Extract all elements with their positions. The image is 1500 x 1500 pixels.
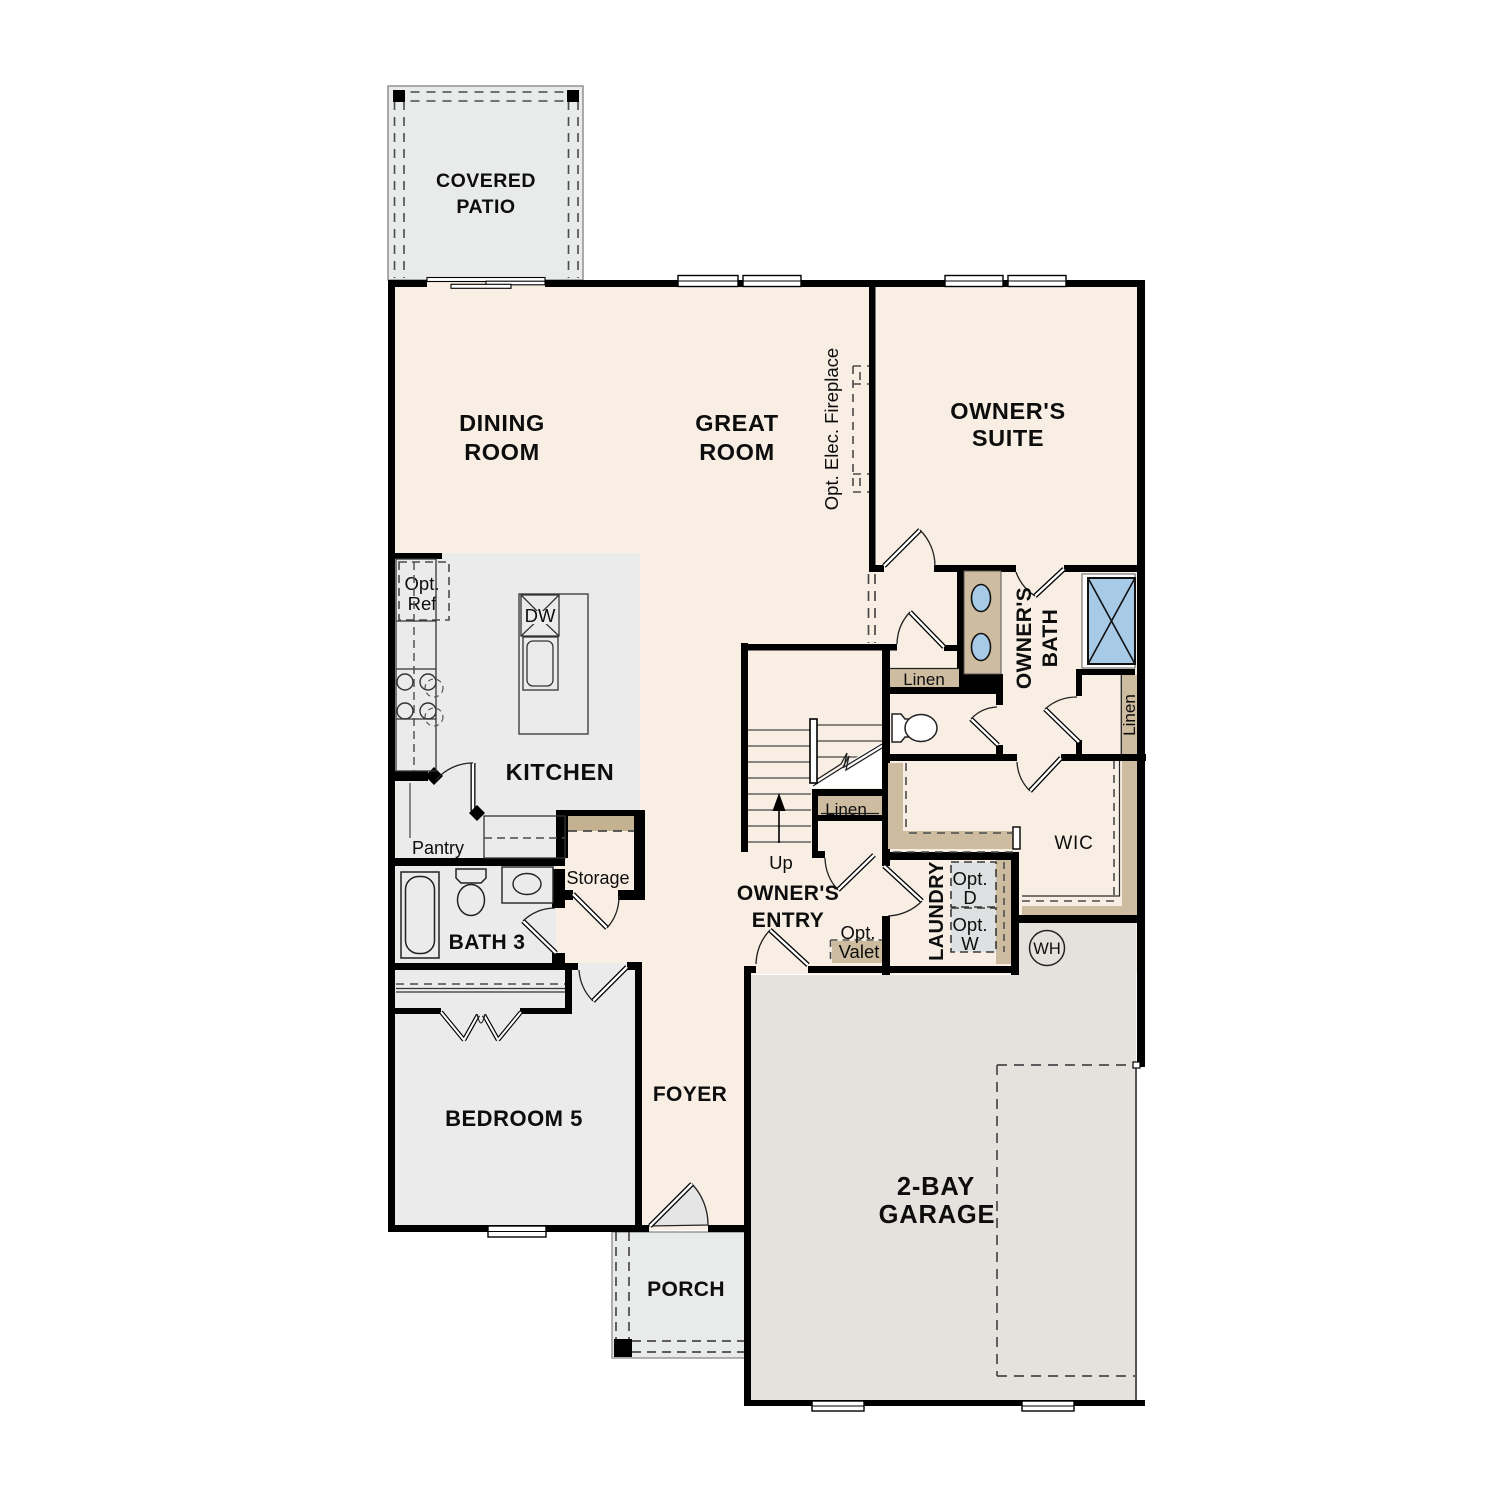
svg-text:OWNER'S: OWNER'S — [737, 882, 839, 905]
svg-text:OWNER'S: OWNER'S — [950, 398, 1066, 424]
svg-text:BATH 3: BATH 3 — [449, 931, 526, 954]
svg-text:Opt.: Opt. — [953, 868, 988, 889]
svg-text:PATIO: PATIO — [456, 196, 515, 218]
svg-text:LAUNDRY: LAUNDRY — [926, 861, 948, 961]
svg-text:Pantry: Pantry — [412, 838, 464, 858]
svg-text:Opt.: Opt. — [953, 914, 988, 935]
svg-text:KITCHEN: KITCHEN — [506, 759, 615, 785]
svg-text:SUITE: SUITE — [972, 425, 1044, 451]
svg-text:Valet: Valet — [839, 941, 880, 962]
svg-text:Linen: Linen — [825, 800, 867, 819]
svg-text:Up: Up — [769, 852, 793, 873]
svg-text:Opt. Elec. Fireplace: Opt. Elec. Fireplace — [821, 348, 842, 510]
svg-text:Linen: Linen — [1120, 694, 1139, 736]
svg-text:W: W — [961, 933, 979, 954]
svg-text:WIC: WIC — [1054, 833, 1093, 854]
svg-text:2-BAY: 2-BAY — [897, 1173, 975, 1201]
svg-text:GARAGE: GARAGE — [879, 1201, 996, 1229]
svg-text:Opt.: Opt. — [405, 573, 440, 594]
svg-text:BATH: BATH — [1039, 609, 1062, 667]
svg-text:ROOM: ROOM — [699, 439, 775, 465]
svg-text:GREAT: GREAT — [695, 410, 779, 436]
svg-text:DW: DW — [525, 605, 556, 626]
svg-text:Ref: Ref — [408, 593, 438, 614]
svg-text:ROOM: ROOM — [464, 439, 540, 465]
svg-text:D: D — [963, 887, 976, 908]
svg-text:Storage: Storage — [566, 868, 629, 888]
svg-text:Linen: Linen — [903, 670, 945, 689]
svg-text:BEDROOM 5: BEDROOM 5 — [445, 1106, 583, 1131]
svg-text:OWNER'S: OWNER'S — [1013, 587, 1036, 689]
svg-text:ENTRY: ENTRY — [752, 909, 824, 932]
svg-text:WH: WH — [1033, 940, 1061, 958]
svg-text:Opt.: Opt. — [841, 922, 876, 943]
svg-text:COVERED: COVERED — [436, 170, 536, 192]
svg-text:DINING: DINING — [459, 410, 545, 436]
svg-text:FOYER: FOYER — [653, 1083, 727, 1106]
svg-text:PORCH: PORCH — [647, 1278, 725, 1301]
